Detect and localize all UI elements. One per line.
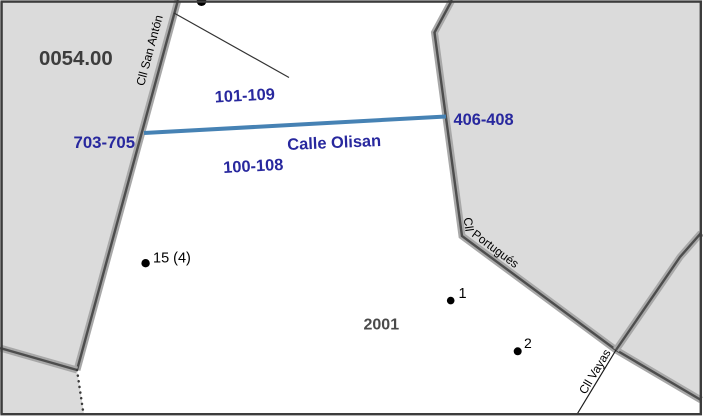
svg-text:2001: 2001	[364, 317, 400, 334]
svg-text:0054.00: 0054.00	[39, 48, 113, 70]
svg-text:101-109: 101-109	[214, 85, 275, 106]
svg-text:100-108: 100-108	[223, 156, 284, 177]
svg-text:2: 2	[524, 335, 532, 351]
svg-text:703-705: 703-705	[74, 133, 136, 152]
svg-text:406-408: 406-408	[454, 111, 514, 129]
svg-text:15 (4): 15 (4)	[153, 251, 191, 267]
svg-text:1: 1	[459, 286, 467, 302]
